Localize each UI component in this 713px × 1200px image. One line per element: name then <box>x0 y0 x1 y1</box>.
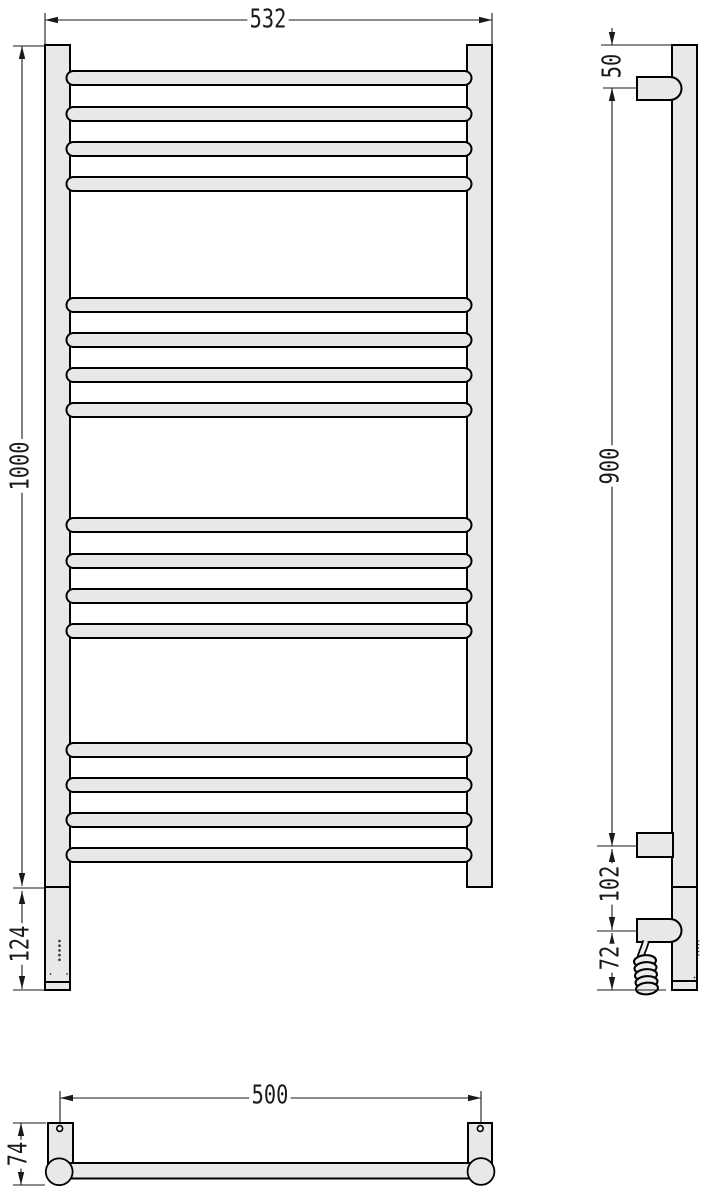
dim-label-side-lower-gap: 102 <box>597 863 624 904</box>
plan-rung-bar <box>59 1163 481 1179</box>
plan-right-screw-hole <box>477 1126 483 1132</box>
rung <box>67 403 472 417</box>
dim-label-front-extension: 124 <box>7 923 34 964</box>
side-lower-bracket <box>637 833 673 857</box>
rung <box>67 142 472 156</box>
rung <box>67 778 472 792</box>
side-bottom-bracket <box>637 919 682 942</box>
rung <box>67 71 472 85</box>
rung <box>67 107 472 121</box>
rung <box>67 848 472 862</box>
plan-right-collector <box>468 1158 495 1185</box>
rung <box>67 743 472 757</box>
dim-label-front-height: 1000 <box>7 439 34 493</box>
technical-drawing-sheet: 532 1000 124 50 900 102 72 500 74 <box>0 0 713 1200</box>
front-rungs <box>67 71 472 862</box>
dim-label-plan-depth: 74 <box>5 1139 32 1168</box>
dim-label-side-top-offset: 50 <box>599 51 626 80</box>
drawing-canvas <box>0 0 713 1200</box>
power-cable-coil <box>634 941 659 995</box>
rung <box>67 518 472 532</box>
front-view <box>13 13 492 990</box>
front-right-collector <box>467 45 492 887</box>
side-view <box>597 28 699 995</box>
side-collector <box>672 45 697 990</box>
rung <box>67 177 472 191</box>
rung <box>67 589 472 603</box>
rung <box>67 298 472 312</box>
dim-label-front-width: 532 <box>247 6 288 33</box>
dim-label-side-span: 900 <box>597 445 624 486</box>
side-top-bracket <box>637 77 681 100</box>
plan-left-screw-hole <box>57 1126 63 1132</box>
rung <box>67 368 472 382</box>
plan-left-collector <box>46 1158 73 1185</box>
rung <box>67 554 472 568</box>
rung <box>67 333 472 347</box>
dim-label-plan-span: 500 <box>249 1082 290 1109</box>
dim-label-side-bottom-gap: 72 <box>597 943 624 972</box>
rung <box>67 624 472 638</box>
rung <box>67 813 472 827</box>
